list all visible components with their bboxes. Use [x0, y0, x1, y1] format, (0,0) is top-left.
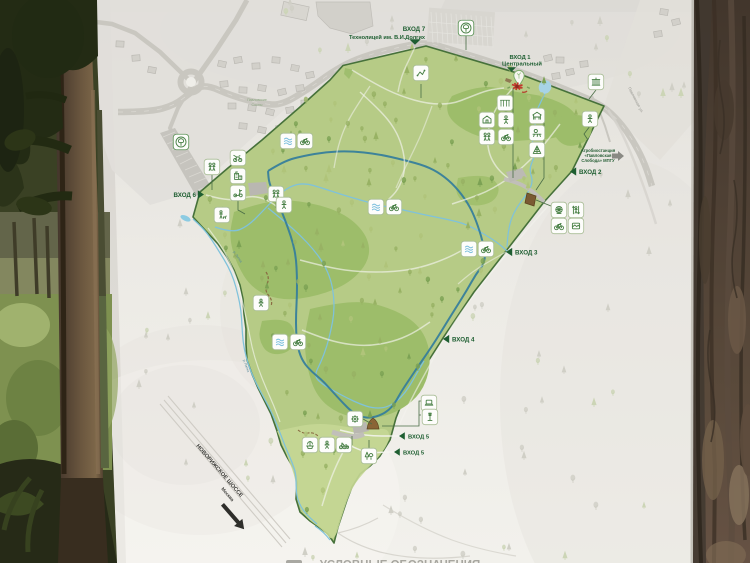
svg-text:ВХОД 6: ВХОД 6	[174, 192, 197, 199]
svg-text:Сосны: Сосны	[252, 103, 263, 107]
svg-text:Центральный: Центральный	[502, 61, 542, 68]
svg-text:Технолицей им. В.И.Долгих: Технолицей им. В.И.Долгих	[349, 34, 426, 41]
svg-text:Павловские: Павловские	[247, 98, 267, 102]
svg-text:ВХОД 4: ВХОД 4	[452, 337, 475, 344]
svg-text:ВХОД 7: ВХОД 7	[403, 26, 426, 33]
svg-text:ВХОД 1: ВХОД 1	[509, 55, 531, 61]
svg-text:ВХОД 5: ВХОД 5	[408, 435, 430, 441]
svg-text:ВХОД 2: ВХОД 2	[579, 169, 602, 176]
svg-text:ВХОД 5: ВХОД 5	[403, 451, 425, 457]
svg-text:ВХОД 3: ВХОД 3	[515, 250, 538, 257]
svg-text:УСЛОВНЫЕ ОБОЗНАЧЕНИЯ: УСЛОВНЫЕ ОБОЗНАЧЕНИЯ	[320, 560, 481, 563]
svg-text:Слобода» МПГУ: Слобода» МПГУ	[581, 158, 615, 163]
